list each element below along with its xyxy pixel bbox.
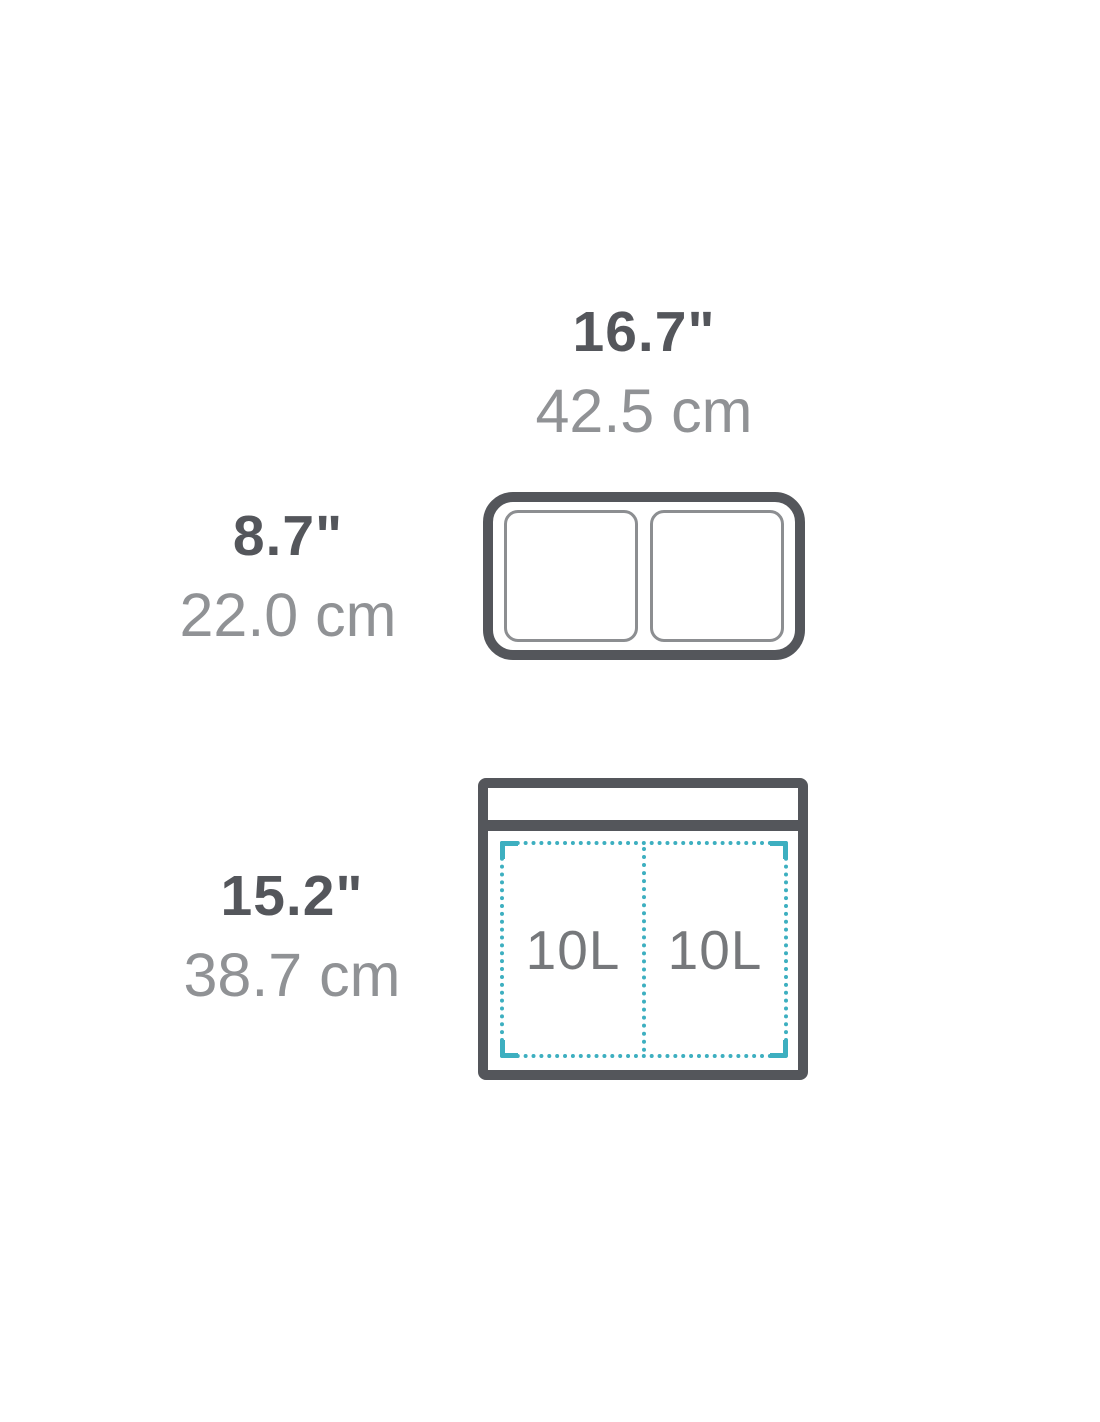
width-inches-text: 16.7" <box>484 294 804 370</box>
height-cm-text: 38.7 cm <box>132 934 452 1016</box>
liner-dashed-outline: 10L 10L <box>500 841 788 1058</box>
lid-strip <box>488 788 798 820</box>
top-view-drawing <box>483 492 805 660</box>
dimension-diagram: 16.7" 42.5 cm 8.7" 22.0 cm 15.2" 38.7 cm… <box>0 0 1100 1422</box>
height-inches-text: 15.2" <box>132 858 452 934</box>
front-view-drawing: 10L 10L <box>478 778 808 1080</box>
lid-divider-bar <box>488 820 798 831</box>
capacity-right-text: 10L <box>668 918 763 982</box>
liner-corner-bottom-right <box>770 1040 788 1058</box>
liner-corner-bottom-left <box>500 1040 518 1058</box>
depth-cm-text: 22.0 cm <box>128 574 448 656</box>
liner-left-compartment: 10L <box>504 845 642 1054</box>
liner-right-compartment: 10L <box>646 845 784 1054</box>
top-view-left-compartment <box>504 510 638 642</box>
bin-body: 10L 10L <box>488 831 798 1070</box>
depth-dimension-label: 8.7" 22.0 cm <box>128 498 448 656</box>
depth-inches-text: 8.7" <box>128 498 448 574</box>
capacity-left-text: 10L <box>526 918 621 982</box>
liner-corner-top-left <box>500 841 518 859</box>
width-dimension-label: 16.7" 42.5 cm <box>484 294 804 452</box>
width-cm-text: 42.5 cm <box>484 370 804 452</box>
liner-corner-top-right <box>770 841 788 859</box>
height-dimension-label: 15.2" 38.7 cm <box>132 858 452 1016</box>
top-view-right-compartment <box>650 510 784 642</box>
